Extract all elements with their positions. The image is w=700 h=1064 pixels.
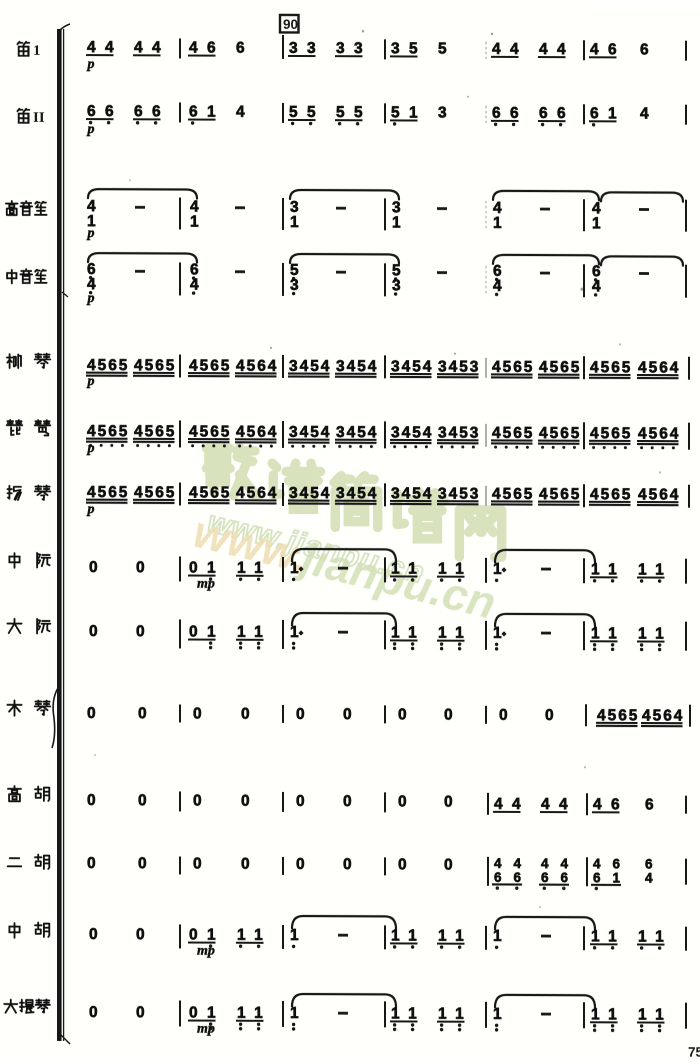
svg-text:0: 0 [545,707,554,724]
svg-text:1: 1 [493,561,502,578]
svg-text:0: 0 [444,794,453,811]
svg-text:3: 3 [290,277,299,294]
svg-text:1: 1 [493,215,502,232]
svg-text:3: 3 [392,277,401,294]
svg-text:1: 1 [190,214,199,231]
svg-text:0: 0 [343,856,352,873]
svg-text:p: p [87,441,95,456]
svg-text:6: 6 [645,797,654,814]
svg-text:II: II [33,110,45,126]
svg-text:1: 1 [592,215,601,232]
svg-text:11: 11 [438,561,473,578]
svg-text:0: 0 [444,857,453,874]
svg-text:0: 0 [241,706,250,723]
svg-text:1: 1 [493,928,502,945]
svg-text:0: 0 [444,707,453,724]
svg-text:61: 61 [590,105,626,122]
svg-text:66: 66 [134,103,170,120]
svg-text:46: 46 [593,856,632,871]
svg-text:11: 11 [638,625,673,642]
svg-text:11: 11 [391,1005,426,1022]
svg-text:1: 1 [392,214,401,231]
svg-text:11: 11 [391,927,426,944]
svg-text:0: 0 [296,793,305,810]
svg-text:p: p [87,502,95,517]
svg-text:66: 66 [494,870,533,885]
svg-text:0: 0 [87,705,96,722]
svg-text:44: 44 [494,856,533,871]
svg-text:0: 0 [241,793,250,810]
svg-text:90: 90 [283,17,298,32]
svg-text:01: 01 [189,927,225,944]
svg-text:55: 55 [289,104,325,121]
svg-text:11: 11 [391,560,426,577]
svg-text:35: 35 [391,40,427,57]
svg-text:4: 4 [592,278,601,295]
svg-text:0: 0 [343,706,352,723]
svg-text:0: 0 [398,856,407,873]
svg-text:11: 11 [638,561,673,578]
svg-text:0: 0 [343,793,352,810]
svg-text:0: 0 [89,926,98,943]
svg-text:01: 01 [189,560,225,577]
svg-text:11: 11 [638,1006,673,1023]
svg-text:0: 0 [241,856,250,873]
svg-text:p: p [87,57,95,72]
svg-text:0: 0 [138,792,147,809]
svg-text:55: 55 [336,104,372,121]
svg-text:1: 1 [493,625,502,642]
svg-text:6: 6 [236,40,245,57]
svg-text:0: 0 [136,1004,145,1021]
svg-text:p: p [87,374,95,389]
svg-text:01: 01 [189,624,225,641]
svg-text:11: 11 [438,928,473,945]
svg-text:66: 66 [492,105,528,122]
svg-text:4: 4 [493,278,502,295]
svg-text:4: 4 [190,277,199,294]
svg-text:0: 0 [138,855,147,872]
svg-text:0: 0 [398,706,407,723]
svg-text:3: 3 [438,105,447,122]
svg-text:1: 1 [290,560,299,577]
svg-text:61: 61 [593,870,632,885]
svg-text:0: 0 [296,706,305,723]
svg-text:0: 0 [87,792,96,809]
svg-text:0: 0 [136,926,145,943]
svg-text:11: 11 [237,624,272,641]
svg-text:0: 0 [398,793,407,810]
svg-text:p: p [87,226,95,241]
svg-text:p: p [87,291,95,306]
svg-text:0: 0 [89,1004,98,1021]
svg-text:1: 1 [290,927,299,944]
svg-text:66: 66 [87,103,123,120]
svg-text:5: 5 [438,41,447,58]
svg-text:mp: mp [197,1022,215,1037]
svg-text:6: 6 [645,857,653,872]
svg-text:61: 61 [189,104,225,121]
svg-text:11: 11 [237,1005,272,1022]
svg-text:1: 1 [33,43,40,59]
svg-text:4: 4 [236,104,245,121]
svg-text:44: 44 [541,796,577,813]
svg-text:1: 1 [493,1006,502,1023]
svg-text:0: 0 [193,856,202,873]
svg-text:mp: mp [197,577,215,592]
svg-text:0: 0 [296,856,305,873]
svg-text:p: p [87,122,95,137]
svg-text:0: 0 [138,705,147,722]
svg-text:44: 44 [492,41,528,58]
svg-text:44: 44 [494,796,530,813]
svg-text:0: 0 [136,559,145,576]
svg-text:66: 66 [539,105,575,122]
svg-text:11: 11 [391,624,426,641]
svg-text:0: 0 [89,559,98,576]
svg-text:44: 44 [541,856,580,871]
svg-text:0: 0 [499,707,508,724]
svg-text:46: 46 [590,41,626,58]
svg-text:44: 44 [539,41,575,58]
svg-text:33: 33 [336,40,372,57]
svg-text:11: 11 [591,625,626,642]
svg-text:0: 0 [89,623,98,640]
svg-text:75: 75 [688,1045,700,1060]
svg-text:11: 11 [591,928,626,945]
svg-text:11: 11 [438,625,473,642]
svg-text:33: 33 [289,40,325,57]
svg-text:11: 11 [591,1006,626,1023]
svg-text:1: 1 [290,214,299,231]
svg-text:1: 1 [290,1005,299,1022]
svg-text:11: 11 [237,560,272,577]
svg-text:46: 46 [189,40,225,57]
svg-text:51: 51 [391,104,427,121]
svg-text:11: 11 [438,1006,473,1023]
svg-text:66: 66 [541,870,580,885]
svg-text:11: 11 [237,927,272,944]
svg-text:0: 0 [193,793,202,810]
svg-text:6: 6 [640,41,649,58]
svg-text:0: 0 [193,706,202,723]
svg-text:0: 0 [87,855,96,872]
svg-text:44: 44 [87,39,123,56]
svg-text:11: 11 [638,928,673,945]
svg-text:1: 1 [290,624,299,641]
svg-text:46: 46 [593,796,629,813]
svg-text:01: 01 [189,1005,225,1022]
svg-text:4: 4 [645,871,653,886]
svg-text:mp: mp [197,944,215,959]
svg-text:0: 0 [136,623,145,640]
svg-text:11: 11 [591,561,626,578]
svg-text:44: 44 [134,39,170,56]
svg-text:4: 4 [640,105,649,122]
